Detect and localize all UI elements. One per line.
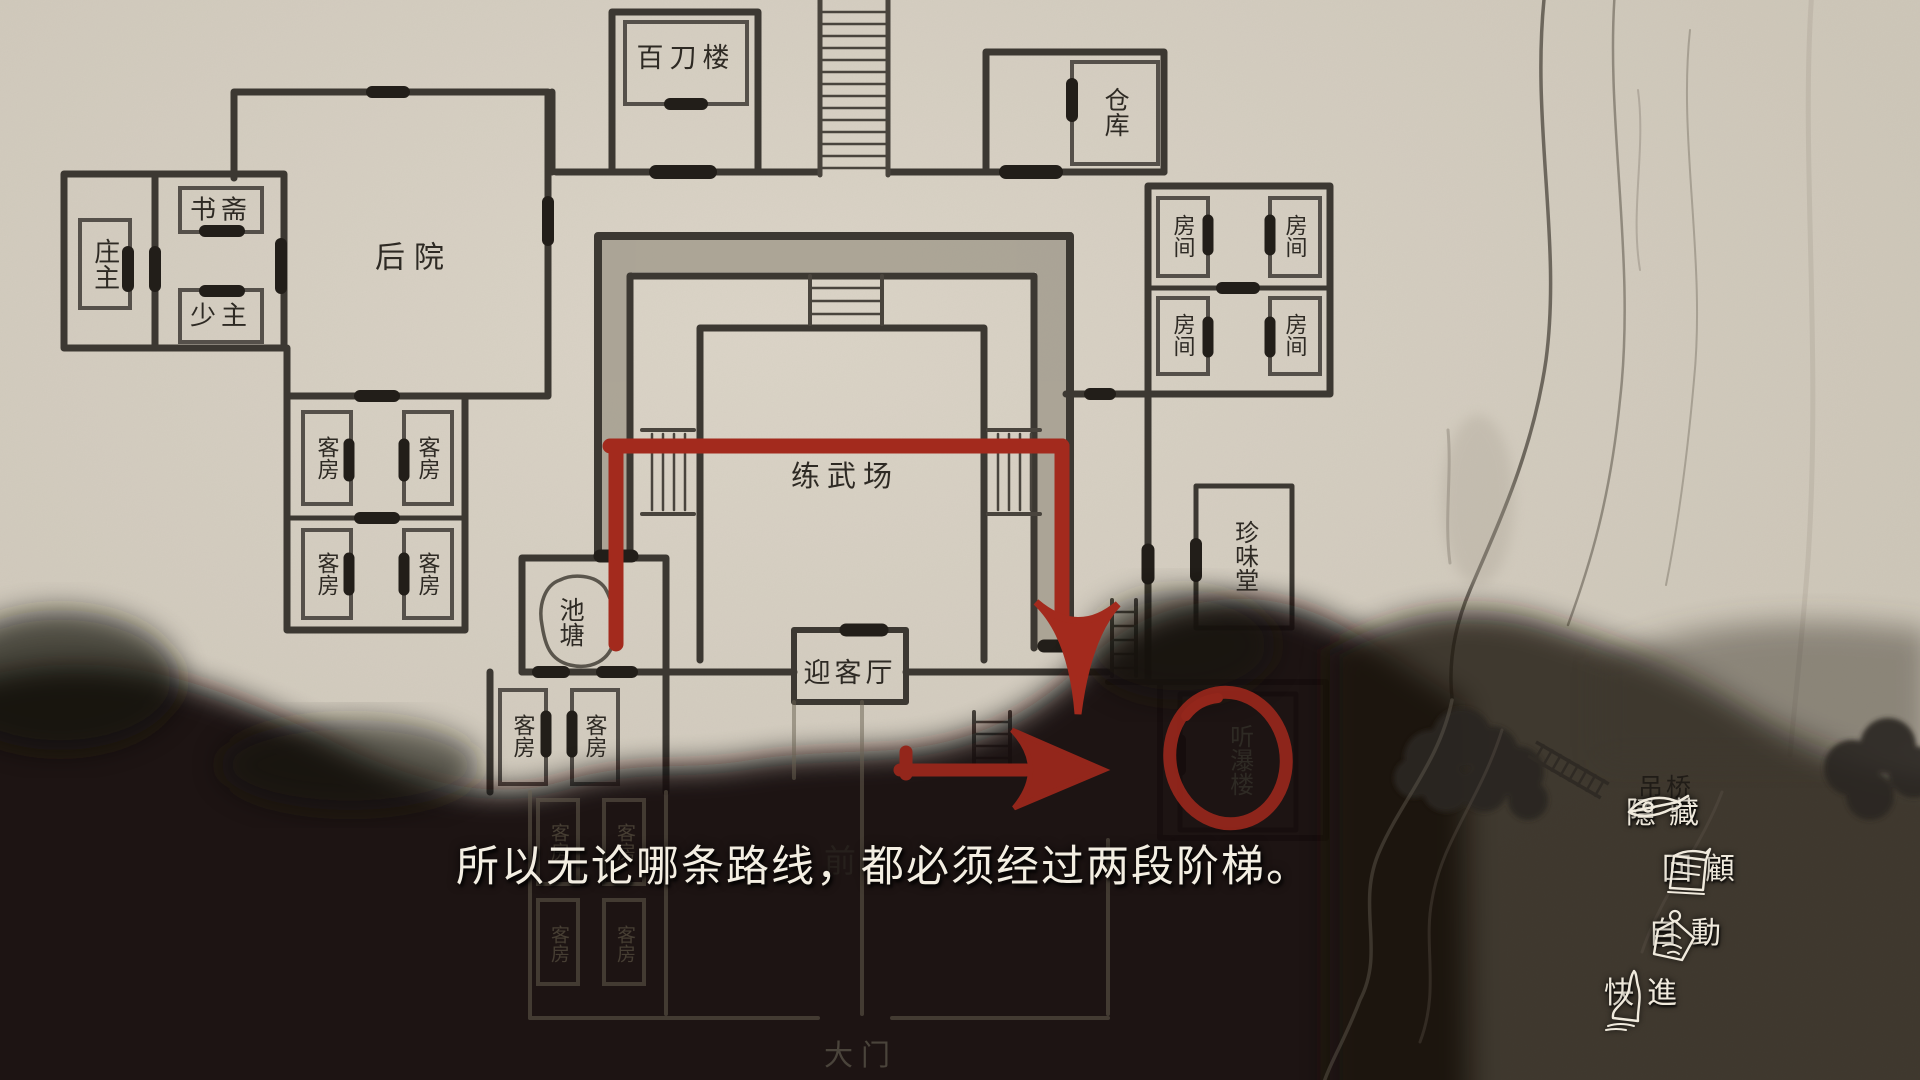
room-label-estate-master: 庄主	[91, 238, 118, 290]
room-label-study: 书斋	[190, 196, 252, 223]
book-icon	[1662, 844, 1720, 896]
room-label-room-3: 房间	[1171, 313, 1194, 357]
room-label-guest-room-6: 客房	[583, 714, 606, 758]
room-label-guest-room-faint-3: 客房	[548, 925, 568, 963]
boot-icon	[1604, 968, 1660, 1032]
room-label-guest-room-1: 客房	[315, 436, 338, 480]
room-label-room-4: 房间	[1283, 313, 1306, 357]
room-label-training-ground: 练武场	[791, 462, 899, 492]
room-label-guest-room-2: 客房	[416, 436, 439, 480]
menu-hide-button[interactable]: 隱藏	[1626, 788, 1712, 832]
room-label-pond: 池塘	[556, 597, 582, 647]
room-label-reception-hall: 迎客厅	[804, 659, 897, 687]
eye-icon	[1626, 788, 1692, 826]
menu-review-button[interactable]: 回顧	[1662, 844, 1748, 888]
room-label-young-master: 少主	[190, 302, 252, 329]
room-label-listening-waterfall-tower: 听瀑楼	[1225, 724, 1250, 796]
room-label-room-2: 房间	[1283, 214, 1306, 258]
room-label-delicacy-hall: 珍味堂	[1230, 520, 1255, 592]
menu-skip-button[interactable]: 快進	[1604, 968, 1690, 1012]
menu-auto-button[interactable]: 自動	[1648, 908, 1734, 952]
room-label-guest-room-5: 客房	[511, 714, 534, 758]
dialogue-text: 所以无论哪条路线，都必须经过两段阶梯。	[456, 832, 1311, 894]
estate-map	[0, 0, 1920, 1080]
room-label-back-courtyard: 后院	[375, 242, 453, 274]
charm-icon	[1648, 908, 1700, 966]
room-label-guest-room-faint-4: 客房	[614, 925, 634, 963]
room-label-hundred-blade-tower: 百刀楼	[637, 44, 736, 72]
room-label-guest-room-4: 客房	[416, 552, 439, 596]
game-screen: 庄主 书斋 少主 后院 百刀楼 仓库 房间 房间 房间 房间 练武场 珍味堂 池…	[0, 0, 1920, 1080]
room-label-main-gate: 大门	[824, 1032, 898, 1074]
room-label-guest-room-3: 客房	[315, 552, 338, 596]
room-label-room-1: 房间	[1171, 214, 1194, 258]
room-label-warehouse: 仓库	[1101, 87, 1127, 137]
